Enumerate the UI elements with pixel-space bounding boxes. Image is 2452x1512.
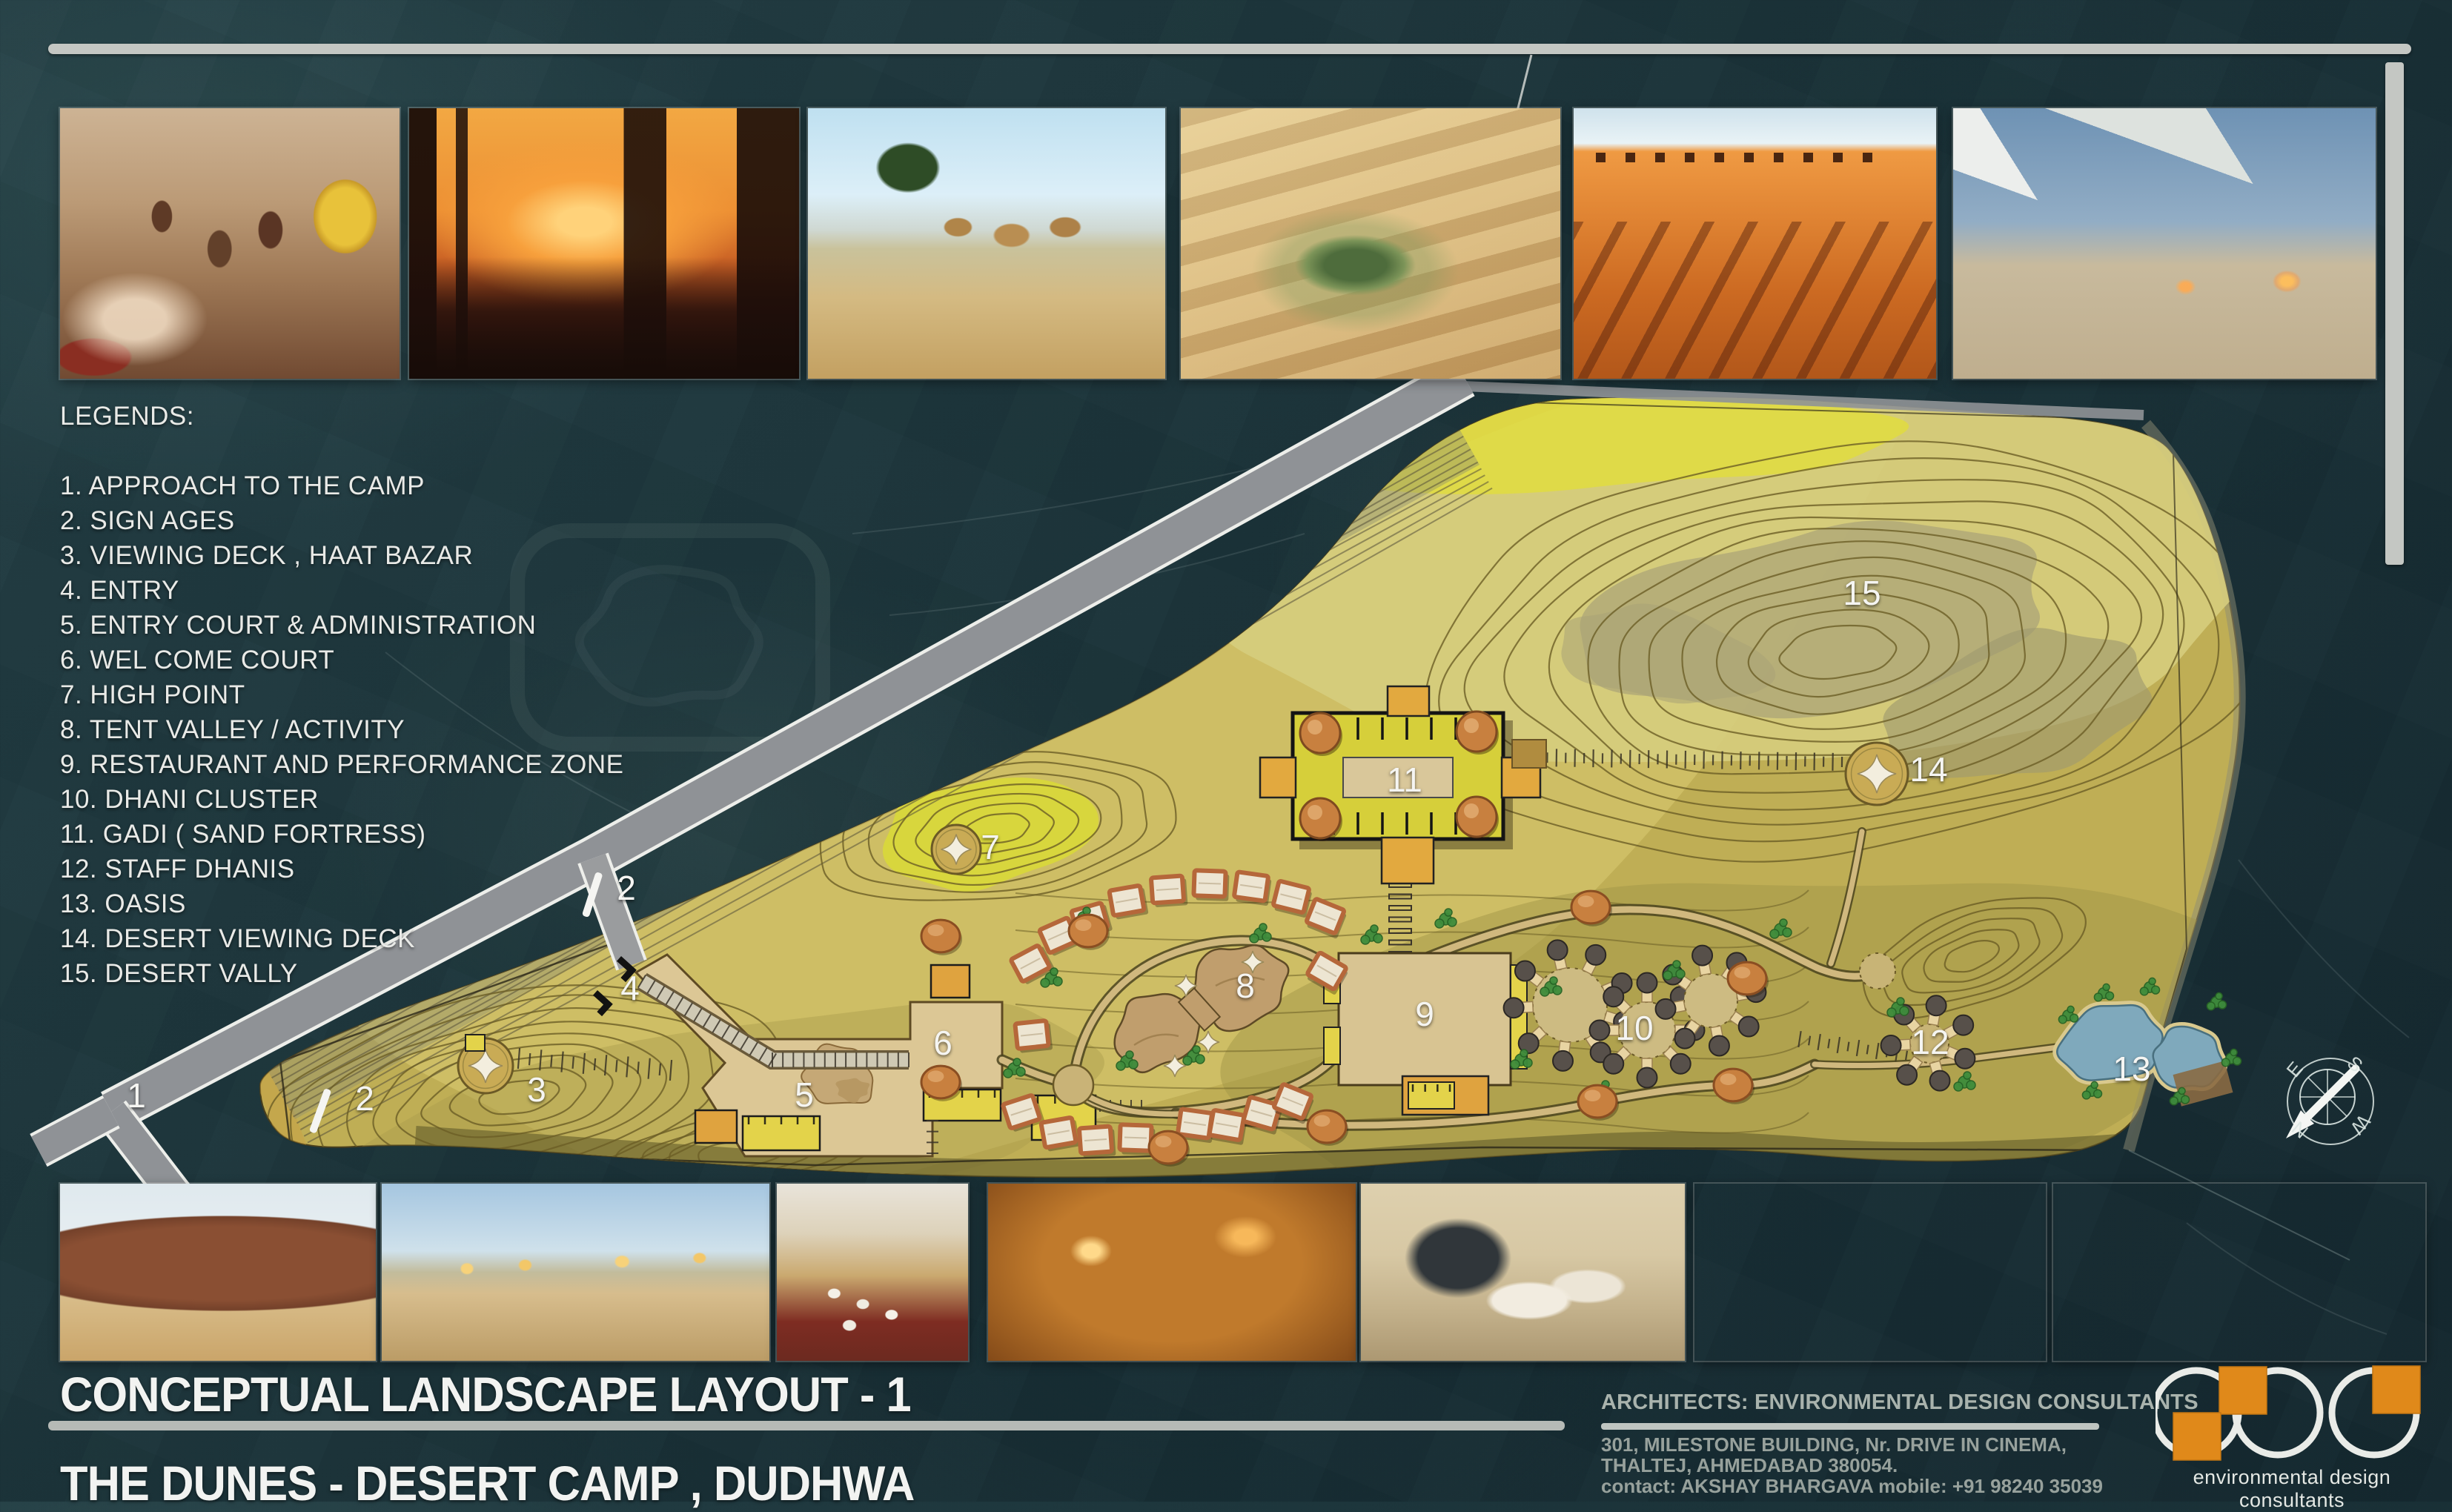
map-label-4: 4 — [620, 968, 640, 1008]
photo-desert-oasis-aerial — [1181, 108, 1560, 379]
photo-dune-lounge-cushions — [777, 1184, 968, 1361]
legend-title: LEGENDS: — [60, 399, 624, 434]
map-label-14: 14 — [1909, 749, 1947, 789]
legend-item: 11. GADI ( SAND FORTRESS) — [60, 817, 624, 852]
legend-item: 14. DESERT VIEWING DECK — [60, 921, 624, 956]
legend-item: 4. ENTRY — [60, 573, 624, 608]
legend-item: 15. DESERT VALLY — [60, 956, 624, 991]
legend-item: 5. ENTRY COURT & ADMINISTRATION — [60, 608, 624, 643]
legend-item: 7. HIGH POINT — [60, 677, 624, 712]
map-label-8: 8 — [1236, 966, 1255, 1006]
legend-item: 10. DHANI CLUSTER — [60, 782, 624, 817]
legend-item: 6. WEL COME COURT — [60, 643, 624, 677]
photo-camp-interior-suite — [60, 108, 400, 379]
map-label-11: 11 — [1387, 760, 1422, 800]
legend-item: 13. OASIS — [60, 886, 624, 921]
legend-panel: LEGENDS: 1. APPROACH TO THE CAMP2. SIGN … — [60, 399, 624, 991]
photo-firepit-courtyard — [1694, 1184, 2046, 1361]
map-label-15: 15 — [1843, 573, 1881, 613]
map-label-2: 2 — [617, 868, 636, 908]
legend-item: 12. STAFF DHANIS — [60, 852, 624, 886]
map-label-6: 6 — [933, 1023, 952, 1063]
title-block: CONCEPTUAL LANDSCAPE LAYOUT - 1 THE DUNE… — [60, 1366, 978, 1511]
svg-text:W: W — [2346, 1110, 2375, 1138]
architect-credits: ARCHITECTS: ENVIRONMENTAL DESIGN CONSULT… — [1601, 1390, 2198, 1496]
svg-text:E: E — [2282, 1057, 2307, 1081]
title-divider — [48, 1421, 1565, 1430]
map-label-1: 1 — [127, 1075, 146, 1115]
map-label-10: 10 — [1615, 1008, 1653, 1048]
photo-lantern-bazaar-interior — [2053, 1184, 2425, 1361]
legend-item: 2. SIGN AGES — [60, 503, 624, 538]
legend-item: 1. APPROACH TO THE CAMP — [60, 468, 624, 503]
legend-item: 3. VIEWING DECK , HAAT BAZAR — [60, 538, 624, 573]
map-label-12: 12 — [1911, 1022, 1949, 1062]
photo-luxury-tent-interior — [1361, 1184, 1685, 1361]
photo-dune-fortress — [60, 1184, 376, 1361]
edc-logo — [2156, 1358, 2428, 1466]
legend-list: 1. APPROACH TO THE CAMP2. SIGN AGES3. VI… — [60, 468, 624, 991]
architect-heading: ARCHITECTS: ENVIRONMENTAL DESIGN CONSULT… — [1601, 1390, 2198, 1415]
photo-camel-caravan-dunes — [1574, 108, 1936, 379]
photo-sunset-pavilion-pool — [409, 108, 799, 379]
page-title: CONCEPTUAL LANDSCAPE LAYOUT - 1 — [60, 1366, 914, 1422]
page-subtitle: THE DUNES - DESERT CAMP , DUDHWA — [60, 1455, 914, 1511]
photo-beach-camp-evening — [1953, 108, 2376, 379]
map-label-13: 13 — [2113, 1049, 2150, 1089]
architect-address: 301, MILESTONE BUILDING, Nr. DRIVE IN CI… — [1601, 1434, 2198, 1496]
map-label-5: 5 — [795, 1075, 814, 1115]
map-label-2: 2 — [355, 1078, 374, 1118]
map-label-7: 7 — [981, 827, 1000, 867]
photo-night-dining-camp — [988, 1184, 1356, 1361]
logo-orange-squares — [2173, 1366, 2420, 1460]
photo-tent-cottages-dusk — [382, 1184, 769, 1361]
legend-item: 8. TENT VALLEY / ACTIVITY — [60, 712, 624, 747]
logo-caption: environmental design consultants — [2156, 1466, 2428, 1512]
legend-item: 9. RESTAURANT AND PERFORMANCE ZONE — [60, 747, 624, 782]
architect-divider — [1601, 1423, 2099, 1430]
map-label-9: 9 — [1415, 994, 1434, 1034]
map-label-3: 3 — [527, 1070, 546, 1110]
photo-village-huts-waterhole — [808, 108, 1165, 379]
